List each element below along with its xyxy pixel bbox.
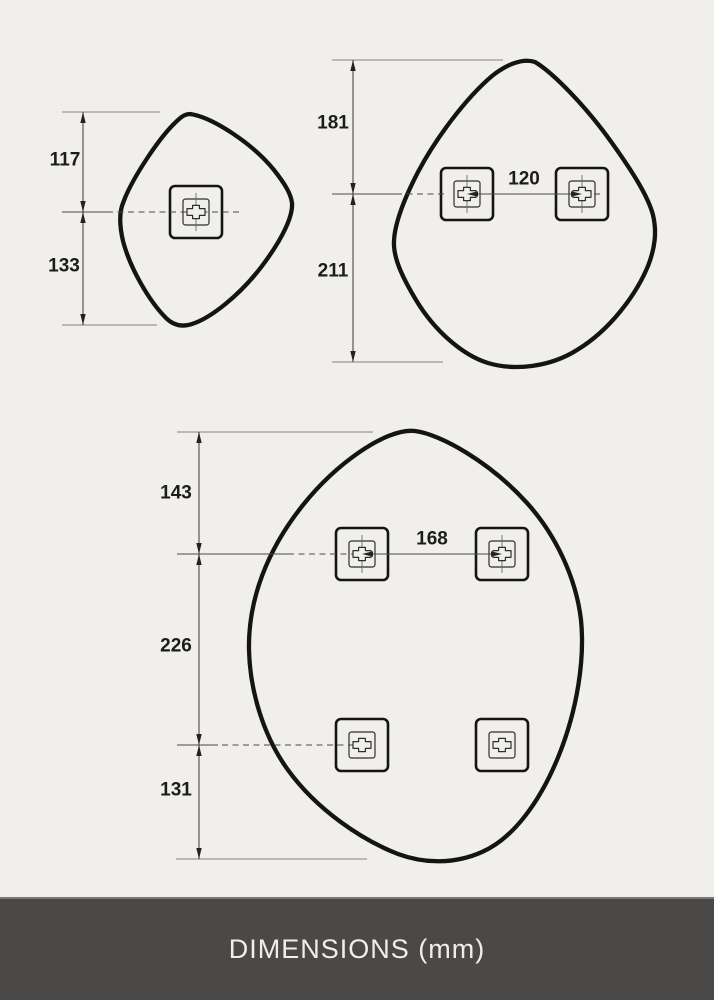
- large-mirror-arrowheads: [196, 432, 502, 859]
- dimension-label-large-spacing: 168: [416, 529, 448, 550]
- dimension-label-medium-spacing: 120: [508, 169, 540, 190]
- dimensions-diagram-page: 117 133: [0, 0, 714, 1000]
- dimension-label-small-bottom: 133: [48, 256, 80, 277]
- footer-title: DIMENSIONS (mm): [229, 934, 485, 965]
- medium-mirror-diagram: 181 211 120: [317, 60, 655, 367]
- large-mirror-outline: [249, 431, 582, 861]
- dimension-label-medium-top: 181: [317, 113, 349, 134]
- small-mirror-diagram: 117 133: [48, 112, 292, 326]
- medium-mirror-outline: [394, 61, 655, 367]
- dimensions-diagram: 117 133: [0, 0, 714, 897]
- footer-bar: DIMENSIONS (mm): [0, 897, 714, 1000]
- dimension-label-large-top: 143: [160, 483, 192, 504]
- dimension-label-medium-bottom: 211: [318, 261, 349, 282]
- large-mirror-diagram: 143 226 131 168: [160, 431, 582, 861]
- dimension-label-large-middle: 226: [160, 636, 192, 657]
- large-mirror-extension-lines: [176, 432, 373, 859]
- dimension-label-small-top: 117: [50, 150, 81, 171]
- dimension-label-large-bottom: 131: [160, 780, 192, 801]
